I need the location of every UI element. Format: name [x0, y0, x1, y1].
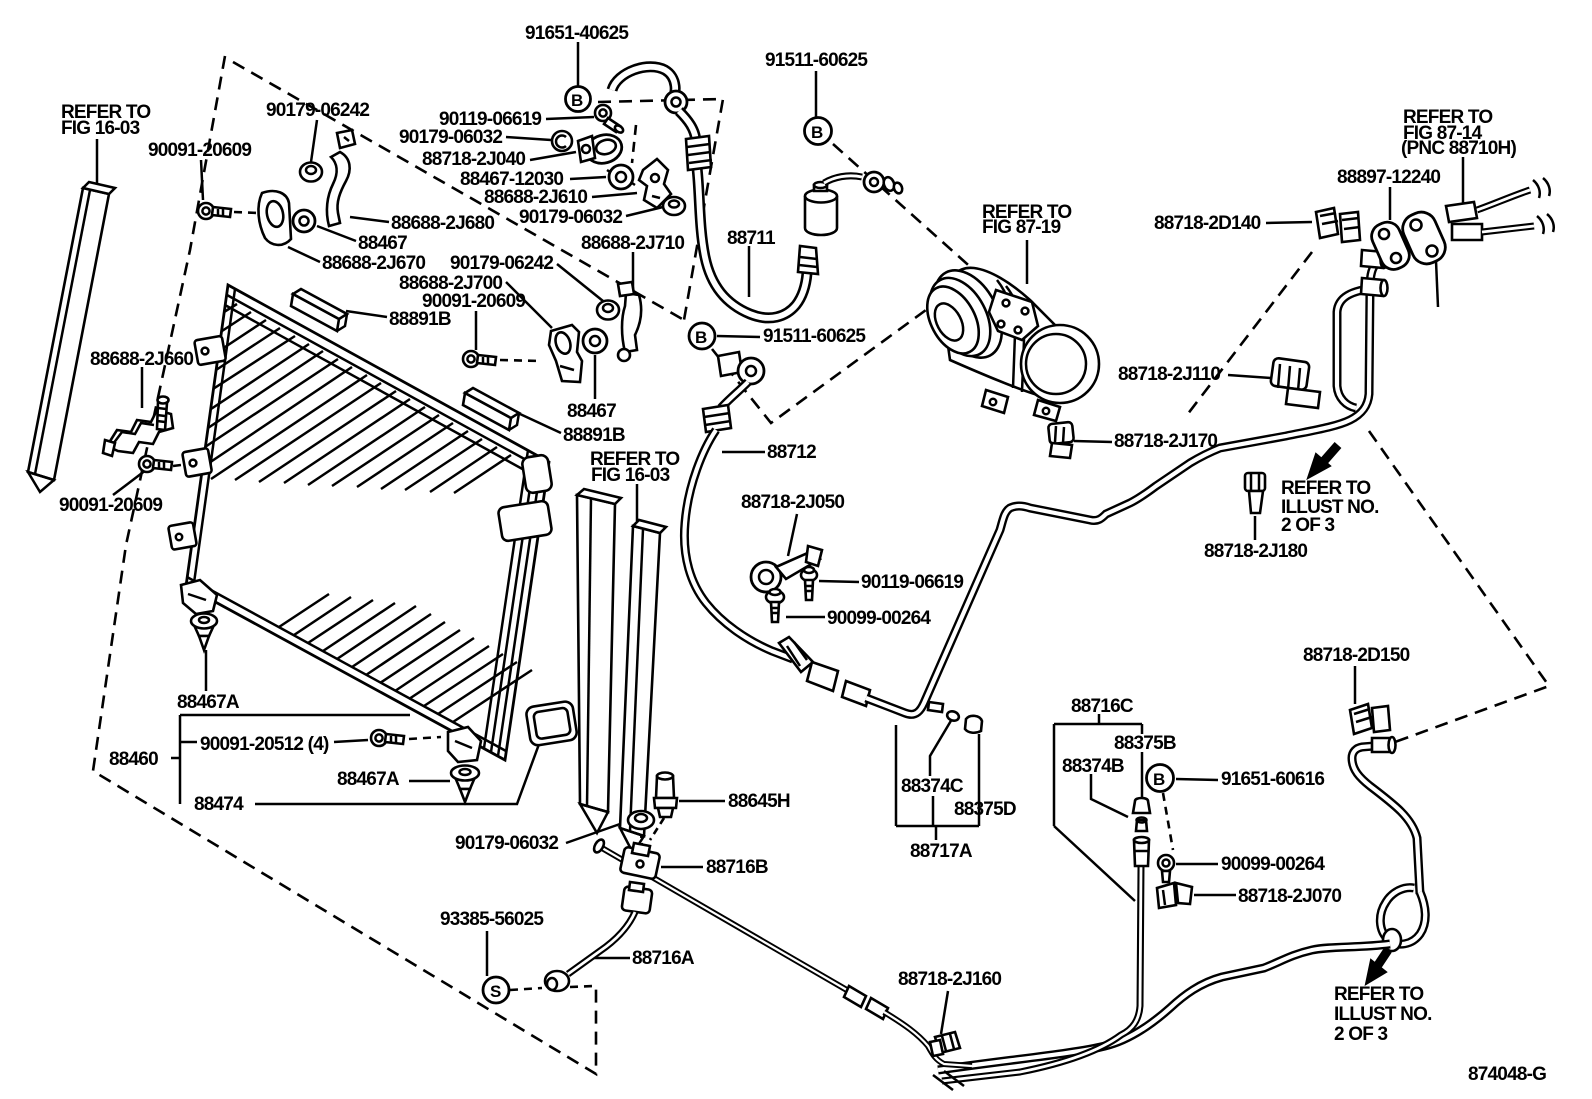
svg-text:88467: 88467: [358, 233, 407, 254]
svg-text:88891B: 88891B: [389, 309, 451, 330]
svg-text:88711: 88711: [727, 228, 776, 249]
svg-text:88460: 88460: [109, 749, 158, 770]
svg-text:91511-60625: 91511-60625: [763, 326, 866, 347]
svg-text:93385-56025: 93385-56025: [440, 909, 544, 930]
svg-text:88718-2J160: 88718-2J160: [898, 969, 1001, 990]
svg-text:88467: 88467: [567, 401, 616, 422]
svg-text:B: B: [1153, 770, 1165, 789]
svg-text:88718-2J170: 88718-2J170: [1114, 431, 1217, 452]
svg-text:88688-2J680: 88688-2J680: [391, 213, 494, 234]
svg-text:88718-2J040: 88718-2J040: [422, 149, 525, 170]
svg-text:2 OF 3: 2 OF 3: [1281, 515, 1335, 536]
svg-text:88375B: 88375B: [1114, 733, 1176, 754]
svg-text:88718-2D140: 88718-2D140: [1154, 213, 1261, 234]
svg-text:90179-06032: 90179-06032: [455, 833, 558, 854]
svg-text:88716A: 88716A: [632, 948, 695, 969]
svg-text:88375D: 88375D: [954, 799, 1016, 820]
svg-text:90091-20512 (4): 90091-20512 (4): [200, 734, 329, 755]
svg-text:88645H: 88645H: [728, 791, 790, 812]
svg-text:88897-12240: 88897-12240: [1337, 167, 1440, 188]
svg-text:88467A: 88467A: [177, 692, 240, 713]
svg-text:REFER TO: REFER TO: [1334, 984, 1423, 1005]
svg-text:B: B: [811, 123, 823, 142]
svg-text:88374C: 88374C: [901, 776, 964, 797]
svg-text:90179-06242: 90179-06242: [450, 253, 553, 274]
svg-text:B: B: [571, 91, 583, 110]
svg-text:91511-60625: 91511-60625: [765, 50, 868, 71]
svg-text:(PNC 88710H): (PNC 88710H): [1401, 138, 1516, 159]
svg-text:874048-G: 874048-G: [1468, 1064, 1546, 1085]
svg-text:88688-2J660: 88688-2J660: [90, 349, 193, 370]
svg-text:88688-2J610: 88688-2J610: [484, 187, 587, 208]
svg-text:91651-40625: 91651-40625: [525, 23, 629, 44]
svg-text:88474: 88474: [194, 794, 244, 815]
svg-text:ILLUST NO.: ILLUST NO.: [1334, 1004, 1432, 1025]
svg-text:90099-00264: 90099-00264: [827, 608, 931, 629]
svg-text:88374B: 88374B: [1062, 756, 1124, 777]
svg-text:88712: 88712: [767, 442, 816, 463]
svg-text:88716C: 88716C: [1071, 696, 1134, 717]
svg-text:90179-06242: 90179-06242: [266, 100, 369, 121]
svg-text:90091-20609: 90091-20609: [59, 495, 162, 516]
svg-text:90091-20609: 90091-20609: [148, 140, 251, 161]
svg-text:88718-2J180: 88718-2J180: [1204, 541, 1307, 562]
svg-text:88467A: 88467A: [337, 769, 400, 790]
svg-text:FIG 16-03: FIG 16-03: [591, 465, 670, 486]
svg-text:88718-2D150: 88718-2D150: [1303, 645, 1410, 666]
svg-text:88688-2J670: 88688-2J670: [322, 253, 425, 274]
svg-text:90119-06619: 90119-06619: [861, 572, 963, 593]
svg-text:88718-2J050: 88718-2J050: [741, 492, 844, 513]
svg-text:REFER TO: REFER TO: [1281, 478, 1370, 499]
svg-text:FIG 87-19: FIG 87-19: [982, 217, 1061, 238]
svg-text:88718-2J110: 88718-2J110: [1118, 364, 1220, 385]
svg-text:88716B: 88716B: [706, 857, 768, 878]
svg-text:88688-2J710: 88688-2J710: [581, 233, 684, 254]
svg-text:91651-60616: 91651-60616: [1221, 769, 1324, 790]
svg-text:S: S: [490, 982, 501, 1001]
svg-text:88718-2J070: 88718-2J070: [1238, 886, 1341, 907]
svg-text:88891B: 88891B: [563, 425, 625, 446]
svg-text:90179-06032: 90179-06032: [399, 127, 502, 148]
svg-text:FIG 16-03: FIG 16-03: [61, 118, 140, 139]
svg-text:2 OF 3: 2 OF 3: [1334, 1024, 1388, 1045]
svg-text:B: B: [695, 328, 707, 347]
svg-text:90099-00264: 90099-00264: [1221, 854, 1325, 875]
svg-text:88717A: 88717A: [910, 841, 973, 862]
svg-text:90179-06032: 90179-06032: [519, 207, 622, 228]
